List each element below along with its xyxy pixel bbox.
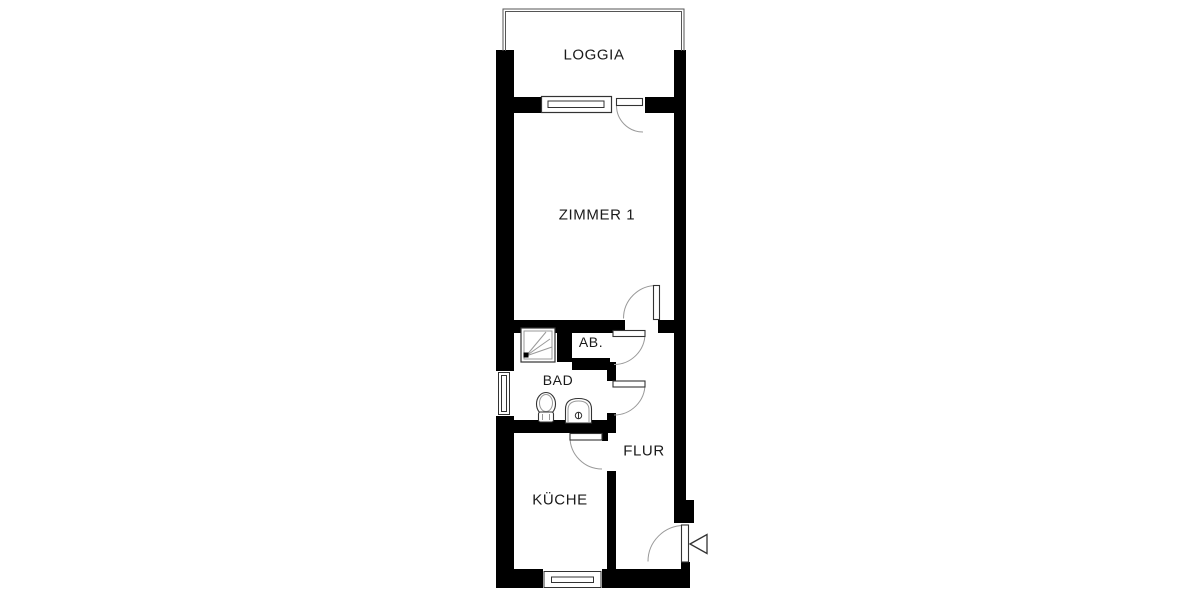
window-kueche [543, 569, 602, 588]
door-zimmer1 [624, 286, 660, 320]
floor-plan: LOGGIA ZIMMER 1 AB. BAD FLUR KÜCHE [0, 0, 1200, 600]
window-loggia [542, 97, 612, 113]
label-zimmer1: ZIMMER 1 [559, 207, 635, 224]
label-loggia: LOGGIA [563, 47, 624, 64]
loggia-railing [503, 9, 684, 51]
plan-linework [0, 0, 1200, 600]
sink [566, 399, 592, 424]
label-bad: BAD [543, 372, 574, 388]
label-kueche: KÜCHE [532, 492, 588, 509]
door-ab [613, 331, 645, 365]
entrance-arrow-icon [690, 535, 707, 554]
door-loggia [617, 99, 644, 133]
toilet [537, 393, 556, 423]
label-ab: AB. [579, 334, 603, 350]
shower [521, 328, 555, 362]
window-bad [496, 371, 514, 416]
door-entrance [648, 525, 689, 562]
label-flur: FLUR [623, 443, 665, 460]
door-bad [613, 381, 645, 415]
door-kueche [570, 434, 602, 470]
